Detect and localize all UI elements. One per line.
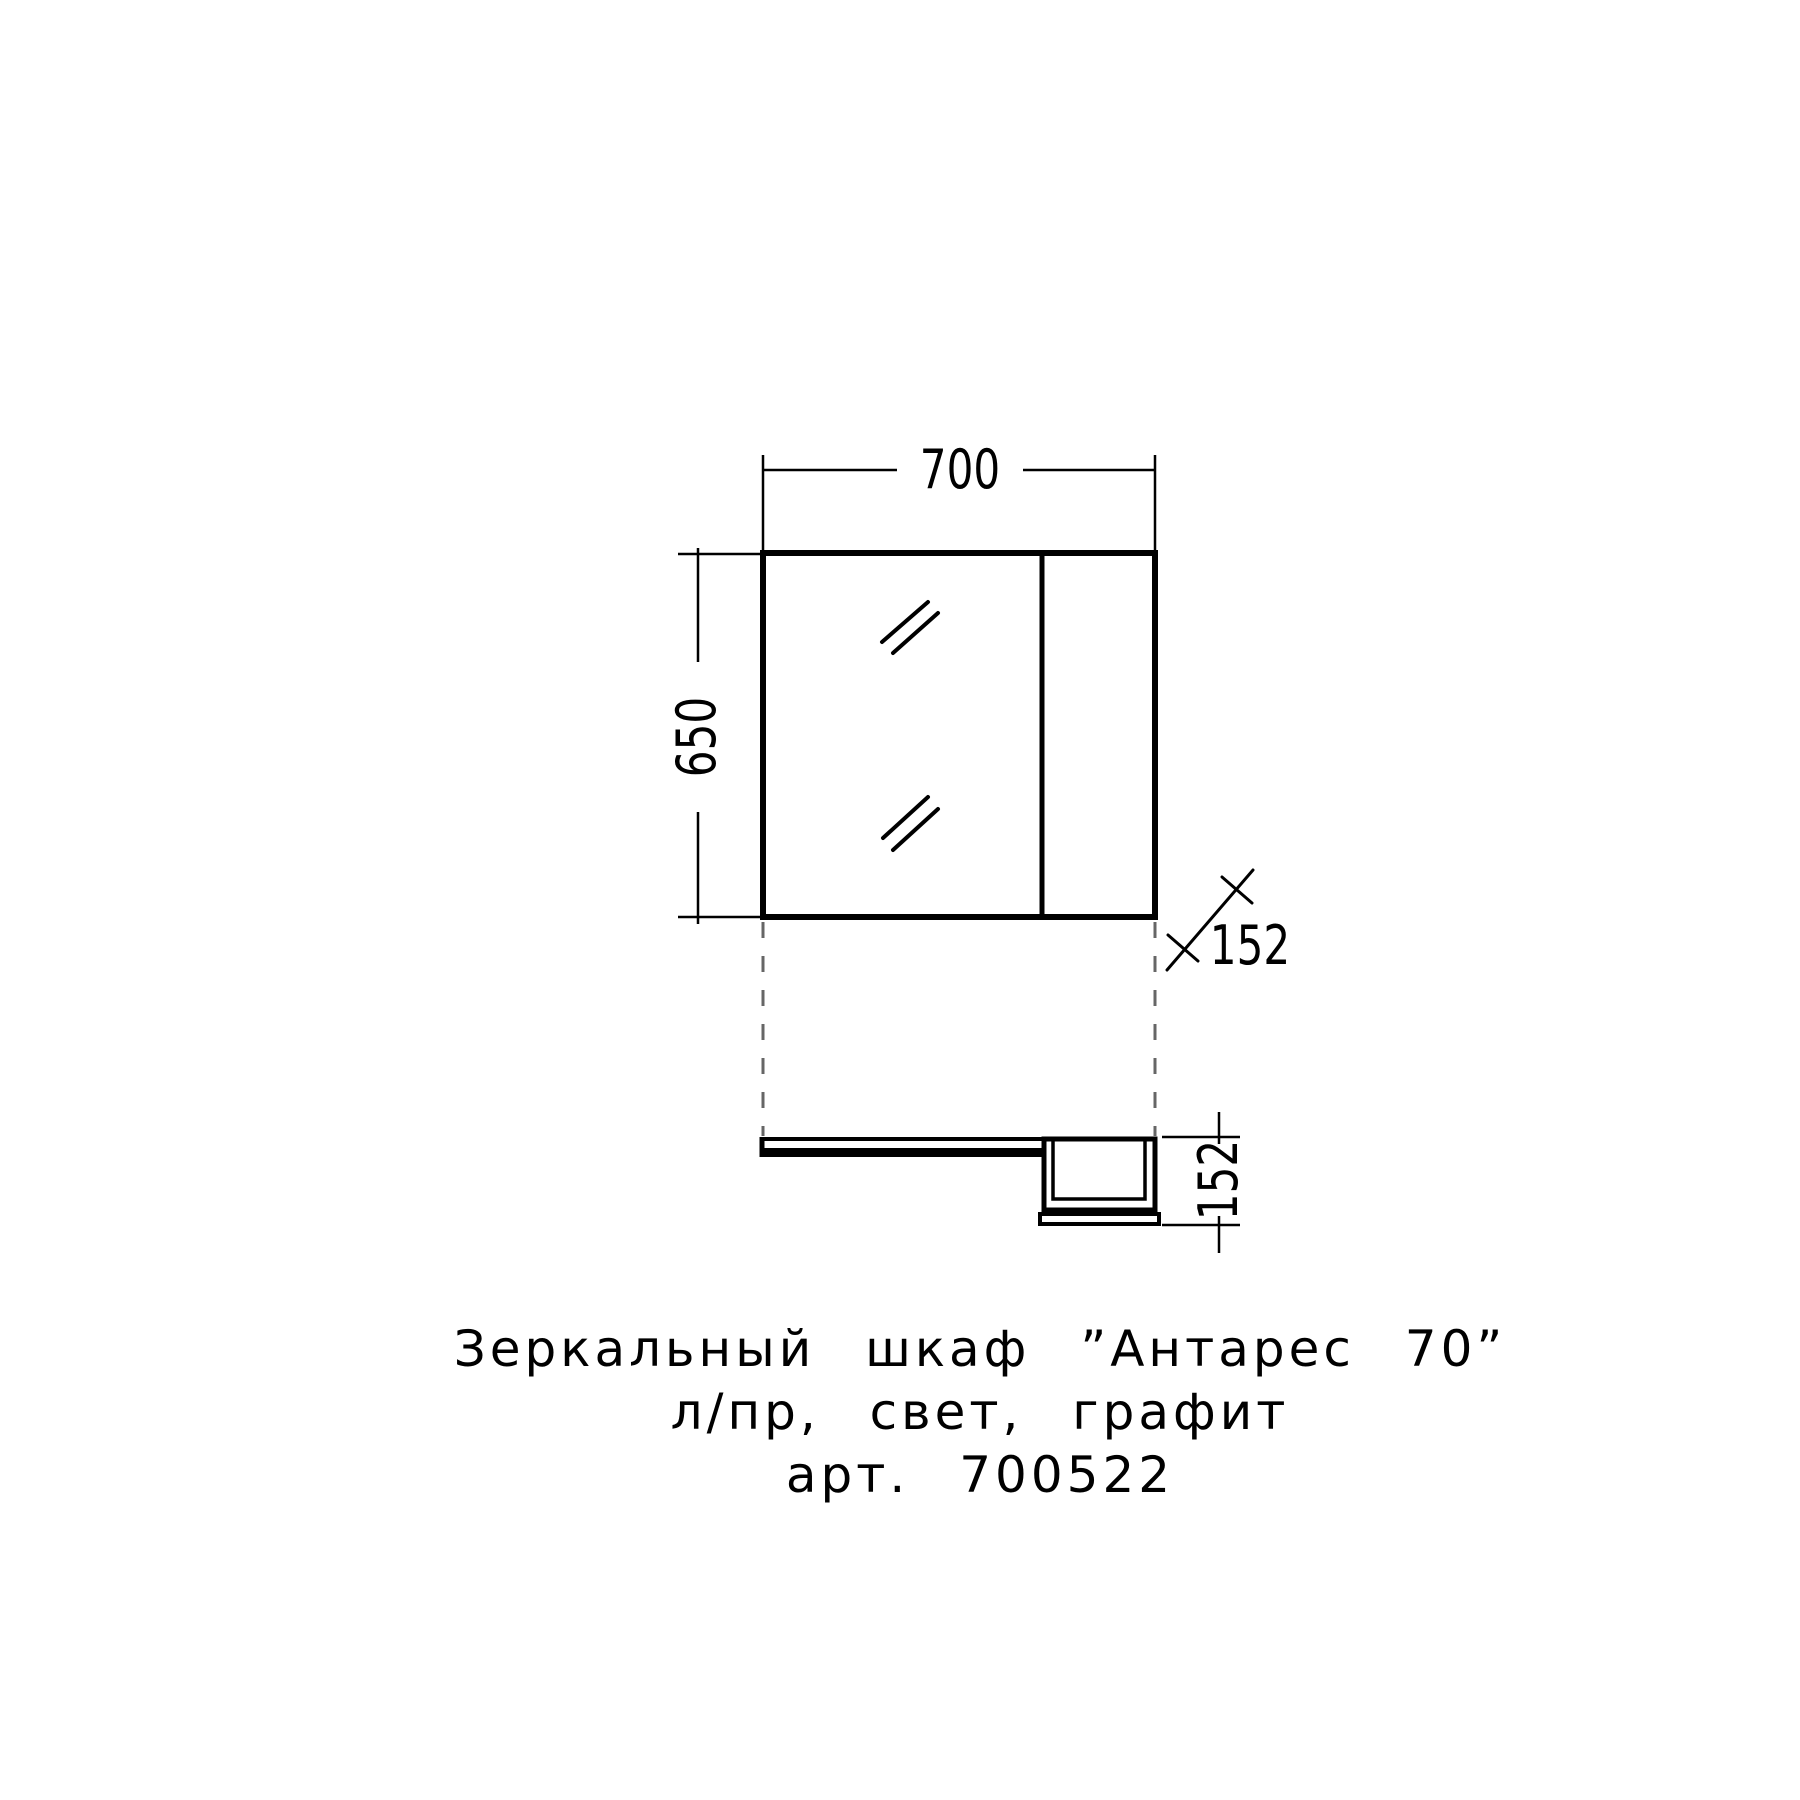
caption-line-options: л/пр, свет, графит: [380, 1381, 1580, 1444]
caption-line-article: арт. 700522: [380, 1444, 1580, 1507]
mirror-hatch-bottom-icon: [883, 797, 938, 850]
dim-height-label: 650: [670, 697, 724, 777]
top-view-bottom-plate: [1040, 1214, 1159, 1224]
top-view-side-box: [1040, 1139, 1159, 1224]
projection-lines: [763, 922, 1155, 1136]
caption-line-product: Зеркальный шкаф ”Антарес 70”: [380, 1318, 1580, 1381]
drawing-canvas: 700 650 152 152 Зеркальный шкаф ”Антарес…: [0, 0, 1800, 1800]
front-view: [763, 553, 1155, 917]
top-view: [760, 1137, 1159, 1224]
technical-drawing-linework: [0, 0, 1800, 1800]
mirror-hatch-top-icon: [882, 602, 938, 653]
caption: Зеркальный шкаф ”Антарес 70” л/пр, свет,…: [380, 1318, 1580, 1507]
dim-depth-side-label: 152: [1192, 1140, 1246, 1220]
dim-width-label: 700: [920, 443, 1000, 497]
cabinet-outline: [763, 553, 1155, 917]
dim-depth-oblique-label: 152: [1210, 919, 1290, 973]
top-view-door-panel: [760, 1137, 1042, 1157]
